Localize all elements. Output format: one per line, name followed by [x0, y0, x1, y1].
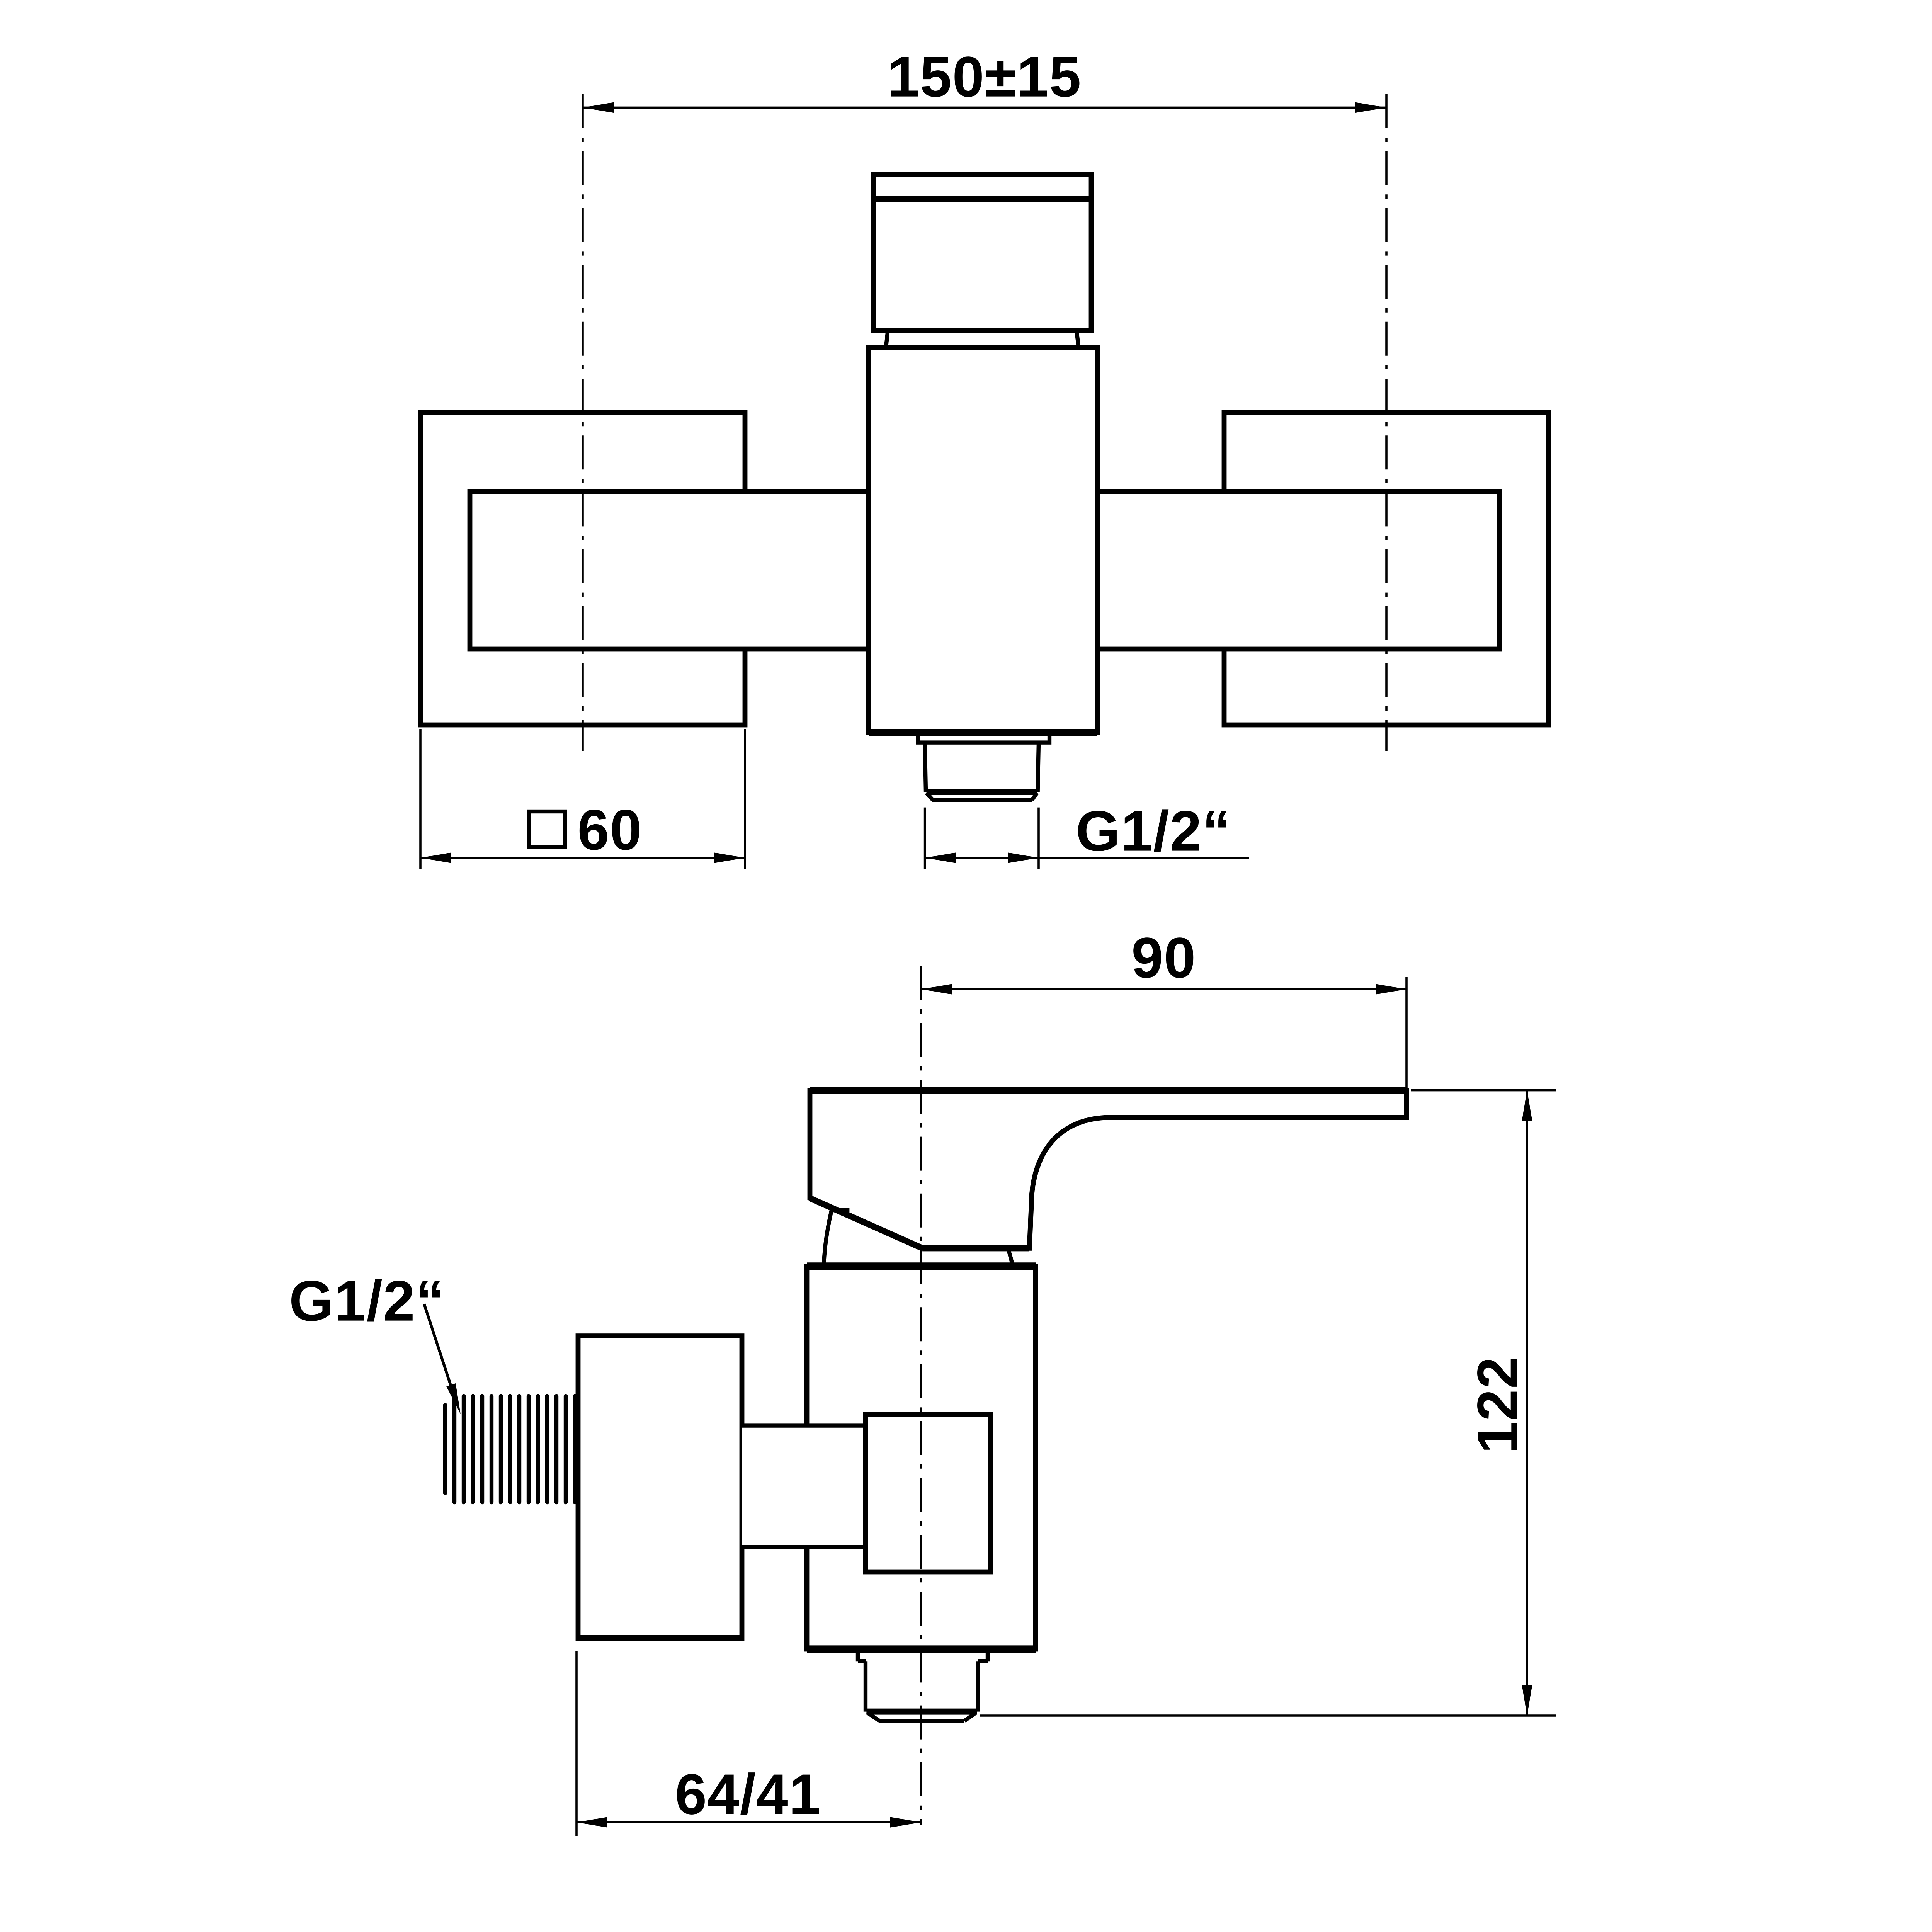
arrowhead-bottom	[1522, 1685, 1532, 1716]
arrowhead-left	[577, 1817, 607, 1827]
arrowhead-left	[925, 852, 956, 863]
dim-outlet-thread: G1/2“	[925, 799, 1249, 869]
square-symbol-icon	[529, 811, 565, 847]
inlet-thread-label: G1/2“	[289, 1269, 445, 1333]
dim-text-6441: 64/41	[675, 1762, 821, 1826]
front-view: 150±15 60 G1/2“	[420, 45, 1549, 869]
neck-line-left	[886, 331, 888, 348]
dim-text-150: 150±15	[888, 45, 1082, 109]
drawing-sheet: 150±15 60 G1/2“	[0, 0, 1932, 1932]
wall-flange-side	[578, 1336, 742, 1638]
arrowhead-right	[1008, 852, 1039, 863]
lever-handle-side	[810, 1090, 1406, 1248]
arrowhead-left	[420, 852, 451, 863]
dim-lever-reach-90: 90	[921, 926, 1406, 1093]
cartridge-dome-left-edge	[824, 1210, 832, 1265]
arrowhead-right	[890, 1817, 921, 1827]
outlet-side	[858, 1649, 988, 1721]
dim-text-90: 90	[1131, 926, 1196, 990]
arrowhead-right	[714, 852, 745, 863]
inlet-thread	[445, 1396, 575, 1502]
arrowhead-left	[583, 102, 614, 113]
arrowhead-right	[1355, 102, 1386, 113]
dim-text-122: 122	[1466, 1356, 1529, 1454]
outlet-thread-side-right	[1038, 743, 1039, 792]
connector-tube-fill	[742, 1426, 866, 1547]
dim-text-g12-front: G1/2“	[1076, 799, 1231, 863]
inlet-thread-callout: G1/2“	[289, 1269, 461, 1414]
dim-wall-offset: 64/41	[577, 1651, 921, 1836]
outlet-thread-side-left	[925, 743, 926, 792]
dim-height-122: 122	[980, 1090, 1556, 1716]
port-block	[866, 1414, 991, 1572]
arrowhead-top	[1522, 1090, 1532, 1121]
connector-tube	[742, 1426, 866, 1547]
side-view: 90	[289, 926, 1556, 1836]
outlet-flange-front	[918, 733, 1049, 743]
arrowhead-right	[1376, 984, 1406, 994]
mixer-body-front	[869, 348, 1097, 733]
dim-width-150: 150±15	[583, 45, 1386, 113]
dim-text-60: 60	[577, 798, 642, 862]
arrowhead-left	[921, 984, 952, 994]
neck-line-right	[1077, 331, 1078, 348]
